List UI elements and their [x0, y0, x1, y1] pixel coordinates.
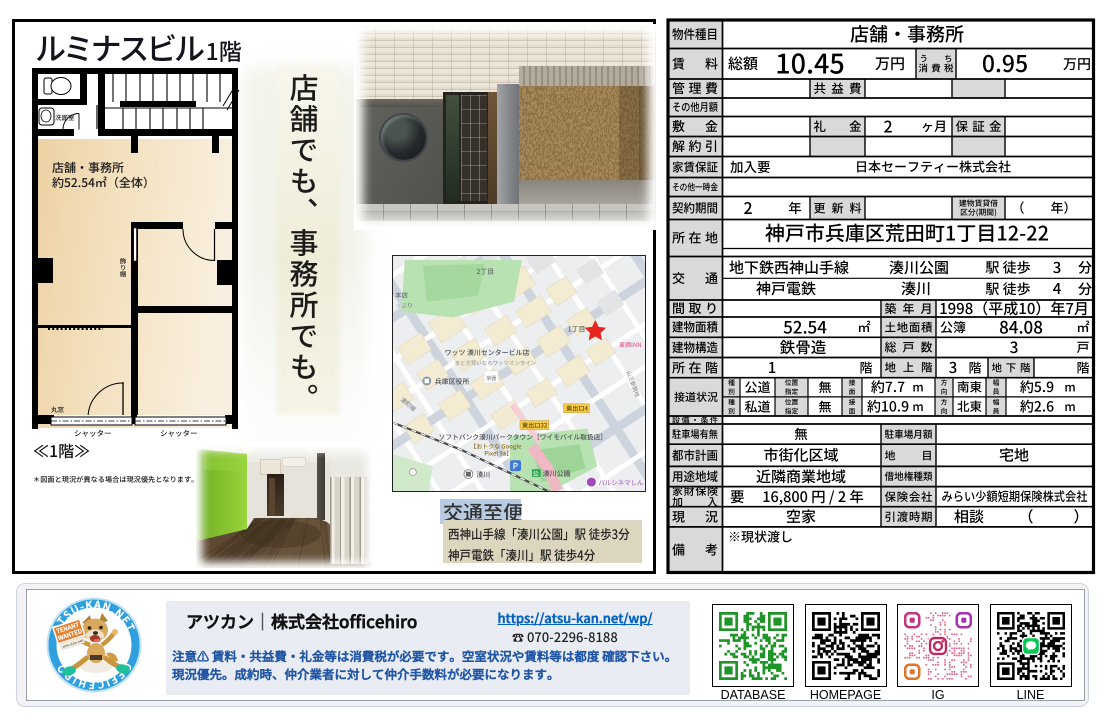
svg-text:駅 徒歩: 駅 徒歩: [985, 279, 1030, 299]
svg-text:別: 別: [728, 386, 735, 396]
svg-text:年: 年: [788, 197, 802, 217]
svg-text:階: 階: [1076, 357, 1089, 376]
svg-text:向: 向: [941, 386, 948, 396]
svg-text:ヶ月: ヶ月: [921, 116, 947, 135]
svg-text:相談: 相談: [954, 506, 984, 527]
svg-text:ワッツ 湊川センタービル店: ワッツ 湊川センタービル店: [445, 347, 530, 357]
svg-text:3: 3: [1053, 257, 1062, 278]
svg-text:更新料: 更新料: [814, 199, 862, 216]
svg-text:面: 面: [849, 406, 856, 416]
svg-text:消費税: 消費税: [919, 61, 954, 75]
svg-text:10.45: 10.45: [775, 43, 845, 82]
svg-text:m: m: [1064, 379, 1075, 396]
svg-text:区分(期間): 区分(期間): [960, 207, 997, 218]
svg-text:引渡時期: 引渡時期: [885, 509, 933, 525]
svg-text:保証金: 保証金: [956, 116, 1002, 135]
svg-text:湊川公園: 湊川公園: [889, 257, 949, 278]
svg-text:）: ）: [1073, 506, 1088, 527]
svg-text:員: 員: [993, 386, 1000, 396]
svg-text:ソフトバンク湊川パークタウン［ワイモバイル取扱店］: ソフトバンク湊川パークタウン［ワイモバイル取扱店］: [439, 431, 607, 441]
svg-text:1丁目: 1丁目: [568, 323, 586, 333]
svg-text:山王新開地: 山王新開地: [625, 370, 642, 399]
svg-text:駅 徒歩: 駅 徒歩: [985, 258, 1030, 278]
svg-text:みらい少額短期保険株式会社: みらい少額短期保険株式会社: [942, 486, 1088, 505]
svg-text:間取り: 間取り: [672, 298, 718, 317]
svg-text:所在階: 所在階: [672, 357, 718, 376]
svg-text:建物構造: 建物構造: [672, 337, 718, 356]
svg-text:3: 3: [949, 357, 958, 378]
svg-text:面: 面: [849, 386, 856, 396]
svg-text:3: 3: [1010, 336, 1019, 358]
svg-text:階: 階: [859, 357, 872, 376]
svg-text:土地面積: 土地面積: [885, 319, 934, 335]
svg-text:解約引: 解約引: [672, 136, 718, 155]
svg-text:丸窓: 丸窓: [51, 404, 65, 414]
svg-text:駐車場有無: 駐車場有無: [672, 427, 718, 442]
svg-text:店舗・事務所: 店舗・事務所: [850, 20, 964, 47]
svg-text:保険会社: 保険会社: [885, 489, 934, 505]
svg-text:借地権種類: 借地権種類: [885, 468, 933, 483]
svg-text:北東: 北東: [957, 396, 983, 415]
svg-text:東横INN: 東横INN: [619, 340, 641, 349]
svg-text:要 16,800 円 / 2 年: 要 16,800 円 / 2 年: [730, 486, 864, 507]
svg-text:東出口4: 東出口4: [566, 404, 588, 413]
svg-text:公簿: 公簿: [940, 317, 966, 336]
svg-text:（ 年）: （ 年）: [1011, 198, 1076, 217]
svg-text:接道状況: 接道状況: [674, 389, 718, 405]
svg-text:飾り棚: 飾り棚: [118, 258, 128, 278]
svg-text:宅地: 宅地: [999, 445, 1029, 466]
svg-text:地 目: 地 目: [885, 447, 933, 463]
svg-text:洗面室: 洗面室: [55, 112, 75, 122]
svg-text:家賃保証: 家賃保証: [672, 158, 718, 175]
svg-text:東出口32: 東出口32: [522, 421, 548, 430]
svg-text:万円: 万円: [875, 53, 905, 74]
svg-text:無: 無: [818, 377, 831, 396]
svg-text:兵庫区役所: 兵庫区役所: [435, 376, 470, 386]
svg-text:1: 1: [768, 357, 777, 378]
svg-text:52.54: 52.54: [783, 313, 827, 338]
svg-text:≪1階≫: ≪1階≫: [33, 438, 90, 462]
svg-text:加入要: 加入要: [730, 156, 771, 176]
svg-text:その他一時金: その他一時金: [672, 179, 718, 193]
svg-text:総額: 総額: [728, 53, 758, 74]
svg-text:別: 別: [728, 406, 735, 416]
svg-text:※現状渡し: ※現状渡し: [728, 527, 793, 546]
svg-text:契約期間: 契約期間: [672, 198, 718, 217]
svg-text:約52.54㎡（全体）: 約52.54㎡（全体）: [52, 174, 155, 191]
svg-text:0.95: 0.95: [982, 45, 1028, 79]
svg-text:m: m: [912, 379, 923, 396]
svg-text:私道: 私道: [744, 396, 770, 415]
svg-text:日本セーフティー株式会社: 日本セーフティー株式会社: [855, 157, 1011, 176]
svg-text:P: P: [513, 460, 519, 472]
svg-text:湊町線: 湊町線: [399, 395, 418, 413]
svg-text:っぷり: っぷり: [395, 301, 413, 310]
svg-text:まと志買いならワッツオンライン: まと志買いならワッツオンライン: [455, 359, 537, 367]
svg-text:約7.7: 約7.7: [871, 377, 905, 397]
svg-text:湊川: 湊川: [901, 278, 931, 299]
svg-text:2: 2: [883, 113, 892, 137]
svg-text:総戸数: 総戸数: [885, 339, 933, 356]
svg-text:分: 分: [1078, 279, 1092, 299]
svg-text:2丁目: 2丁目: [476, 266, 494, 276]
svg-text:築年月: 築年月: [885, 300, 933, 317]
svg-text:㎡: ㎡: [857, 317, 870, 336]
svg-text:空家: 空家: [786, 506, 816, 527]
svg-text:地下階: 地下階: [992, 360, 1032, 375]
svg-text:Pixel 9a】: Pixel 9a】: [484, 448, 512, 457]
svg-text:向: 向: [941, 406, 948, 416]
svg-text:約2.6: 約2.6: [1020, 397, 1054, 417]
svg-text:設備・条件: 設備・条件: [672, 415, 718, 426]
svg-text:m: m: [912, 398, 923, 415]
svg-text:戸: 戸: [1076, 337, 1089, 356]
svg-text:分: 分: [1078, 258, 1092, 278]
svg-text:公: 公: [533, 470, 539, 478]
svg-text:公道: 公道: [744, 377, 770, 396]
svg-text:2: 2: [743, 195, 752, 219]
svg-text:南東: 南東: [957, 377, 983, 396]
svg-text:㎡: ㎡: [1076, 317, 1089, 336]
svg-text:約10.9: 約10.9: [867, 397, 909, 417]
svg-text:無: 無: [794, 423, 808, 443]
svg-text:4: 4: [1053, 278, 1062, 299]
svg-text:鉄骨造: 鉄骨造: [780, 336, 827, 358]
svg-text:駐車場月額: 駐車場月額: [885, 426, 933, 441]
svg-text:階: 階: [968, 357, 981, 376]
svg-text:万円: 万円: [1063, 54, 1091, 74]
svg-text:共益費: 共益費: [814, 78, 862, 97]
svg-text:神戸電鉄: 神戸電鉄: [756, 278, 816, 299]
svg-text:建物面積: 建物面積: [672, 317, 718, 336]
svg-text:地上階: 地上階: [885, 360, 934, 376]
svg-text:都市計画: 都市計画: [672, 445, 718, 464]
svg-text:所在地: 所在地: [672, 228, 718, 247]
svg-text:湊川公園: 湊川公園: [543, 468, 571, 478]
svg-text:物件種目: 物件種目: [672, 24, 718, 43]
svg-text:約5.9: 約5.9: [1020, 377, 1054, 397]
svg-text:指定: 指定: [785, 386, 799, 396]
svg-text:その他月額: その他月額: [672, 99, 718, 115]
svg-text:無: 無: [818, 396, 831, 415]
svg-text:湊川: 湊川: [476, 469, 490, 479]
svg-text:近隣商業地域: 近隣商業地域: [756, 466, 846, 487]
svg-text:（: （: [1018, 506, 1033, 527]
svg-text:シャッター: シャッター: [160, 428, 198, 439]
svg-text:m: m: [1064, 398, 1075, 415]
svg-text:管理費: 管理費: [672, 78, 718, 97]
svg-text:神戸市兵庫区荒田町1丁目12-22: 神戸市兵庫区荒田町1丁目12-22: [765, 218, 1049, 247]
svg-text:市街化区域: 市街化区域: [763, 445, 838, 466]
svg-text:指定: 指定: [785, 406, 799, 416]
svg-text:＊図面と現況が異なる場合は現況優先となります。: ＊図面と現況が異なる場合は現況優先となります。: [33, 475, 198, 485]
svg-text:地下鉄西神山手線: 地下鉄西神山手線: [729, 257, 849, 278]
svg-text:本店: 本店: [395, 291, 408, 300]
svg-text:員: 員: [993, 406, 1000, 416]
svg-text:パルシネマしん: パルシネマしん: [598, 478, 644, 487]
svg-text:84.08: 84.08: [999, 313, 1043, 338]
svg-text:楽器: 楽器: [486, 375, 496, 382]
